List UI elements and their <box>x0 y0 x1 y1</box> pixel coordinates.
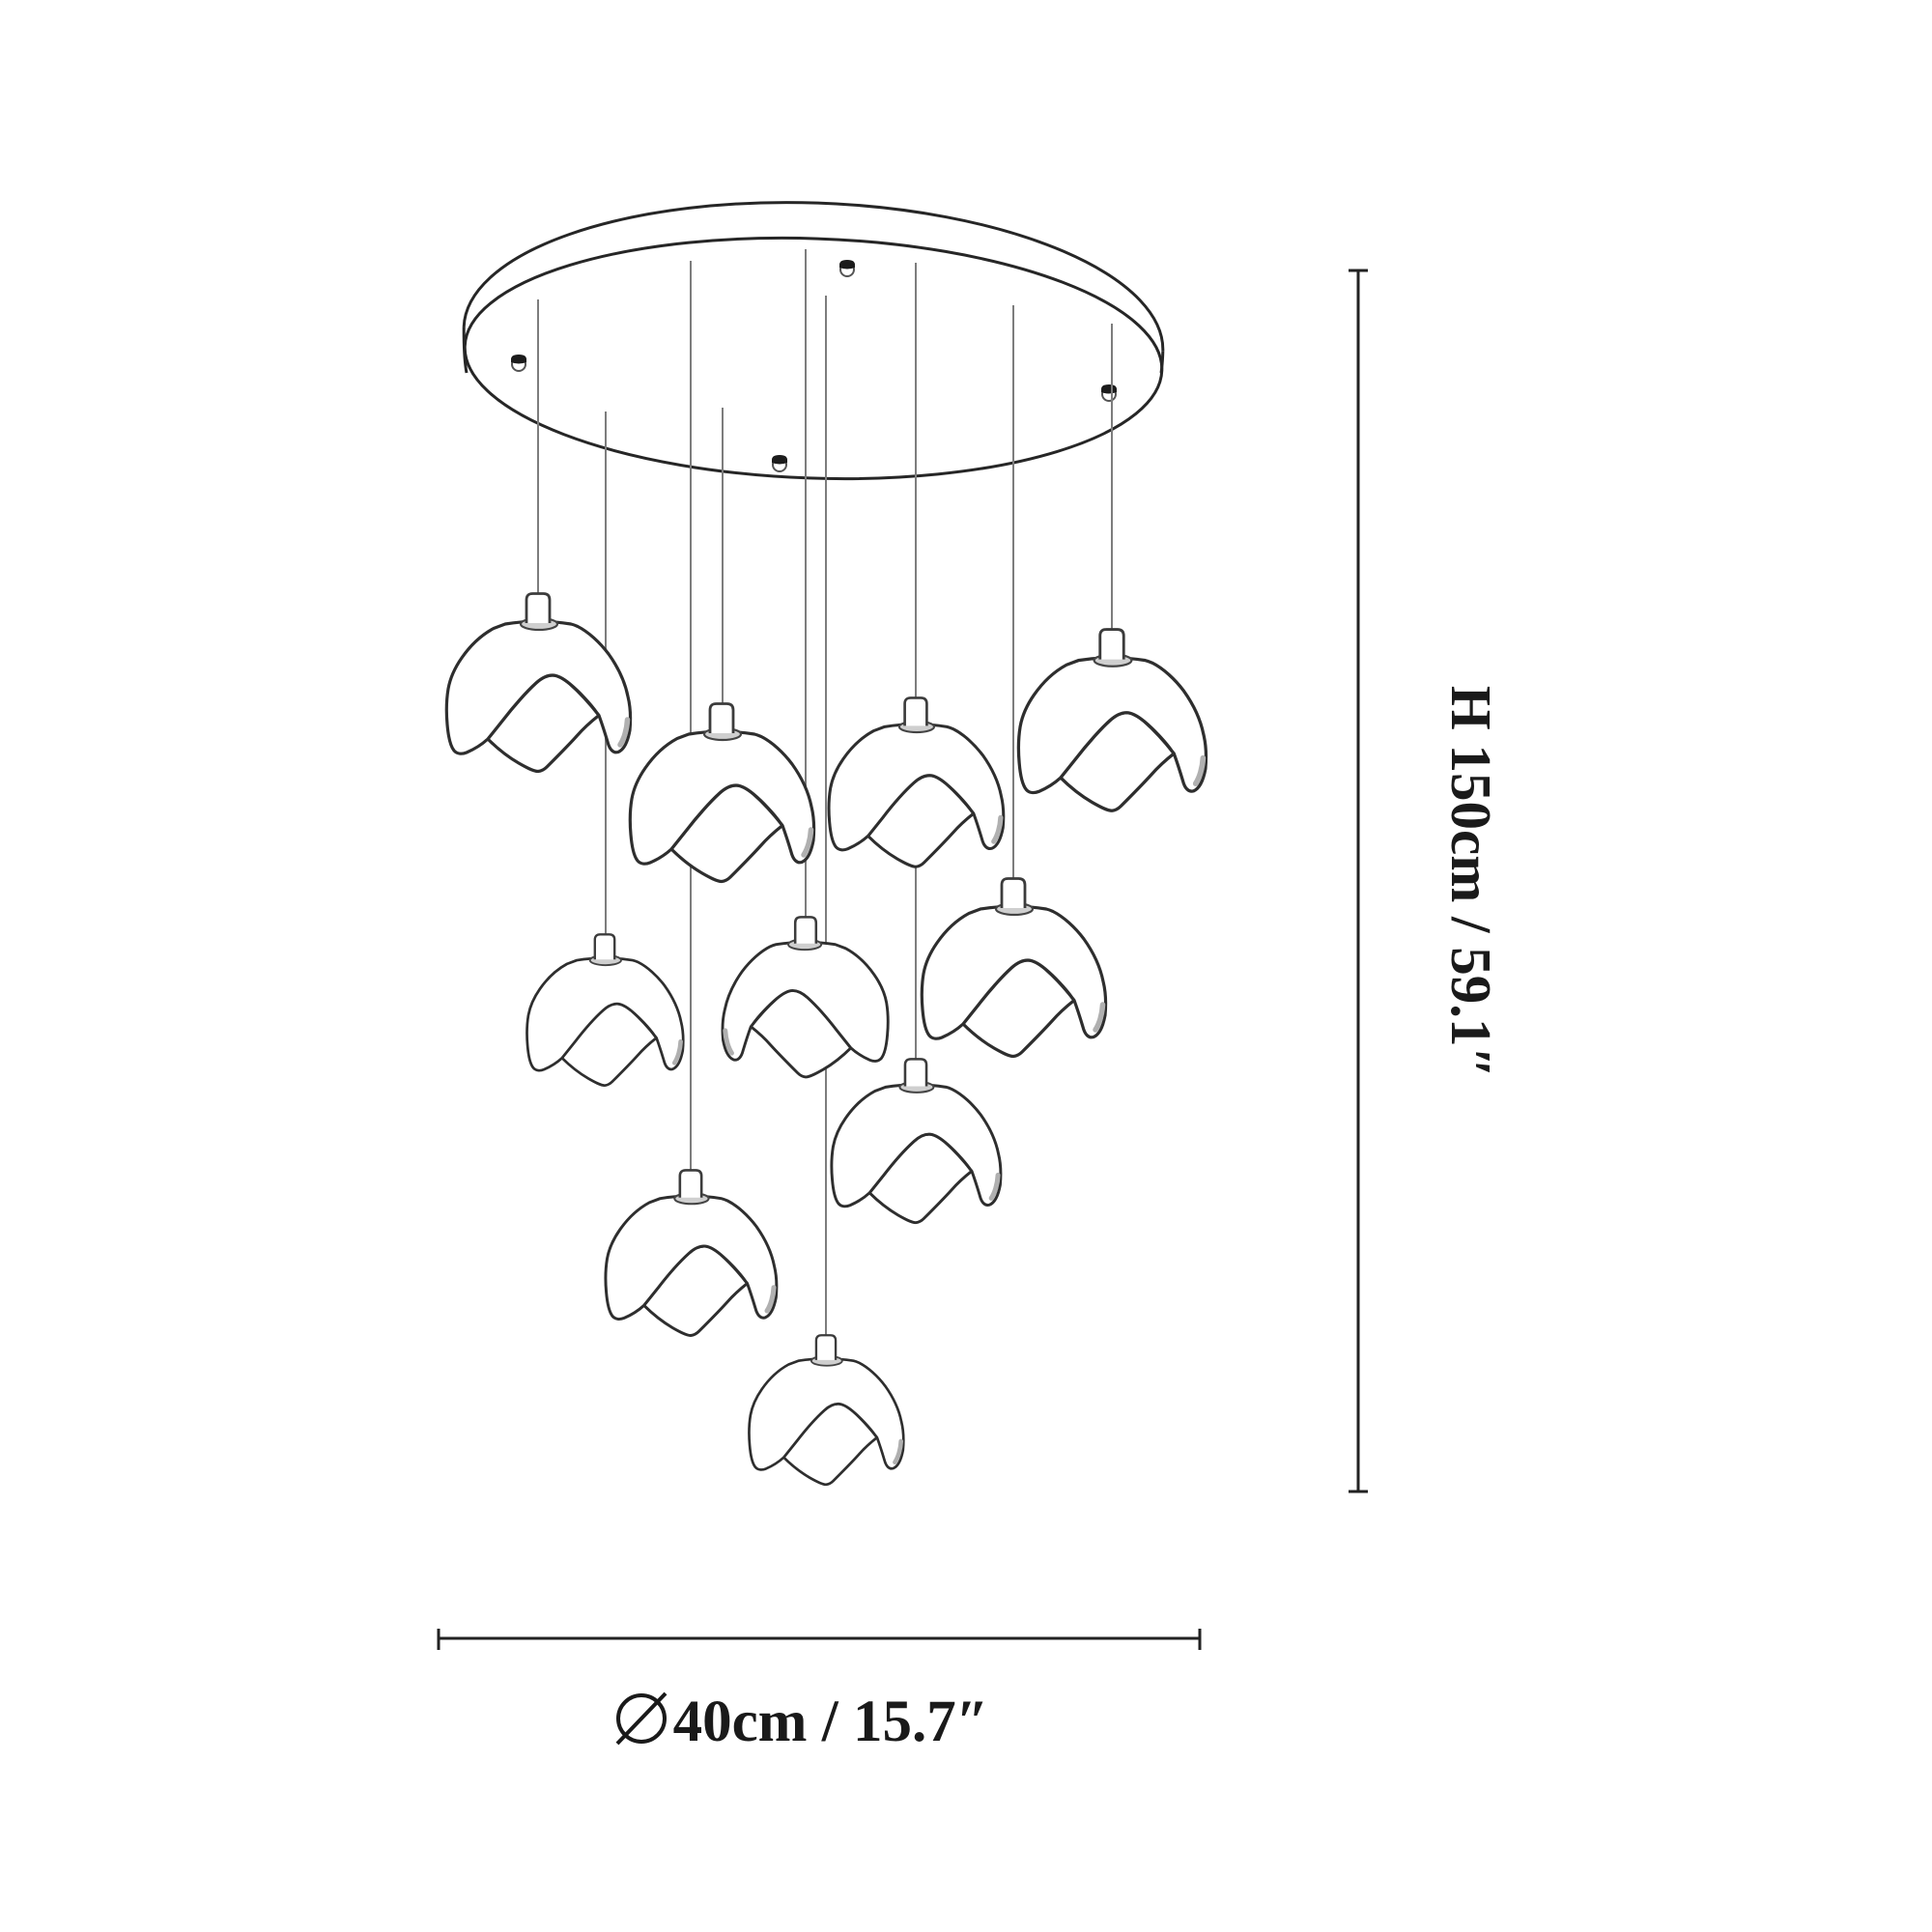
svg-text:40cm / 15.7″: 40cm / 15.7″ <box>673 1690 989 1754</box>
svg-text:H 150cm / 59.1″: H 150cm / 59.1″ <box>1439 686 1503 1078</box>
